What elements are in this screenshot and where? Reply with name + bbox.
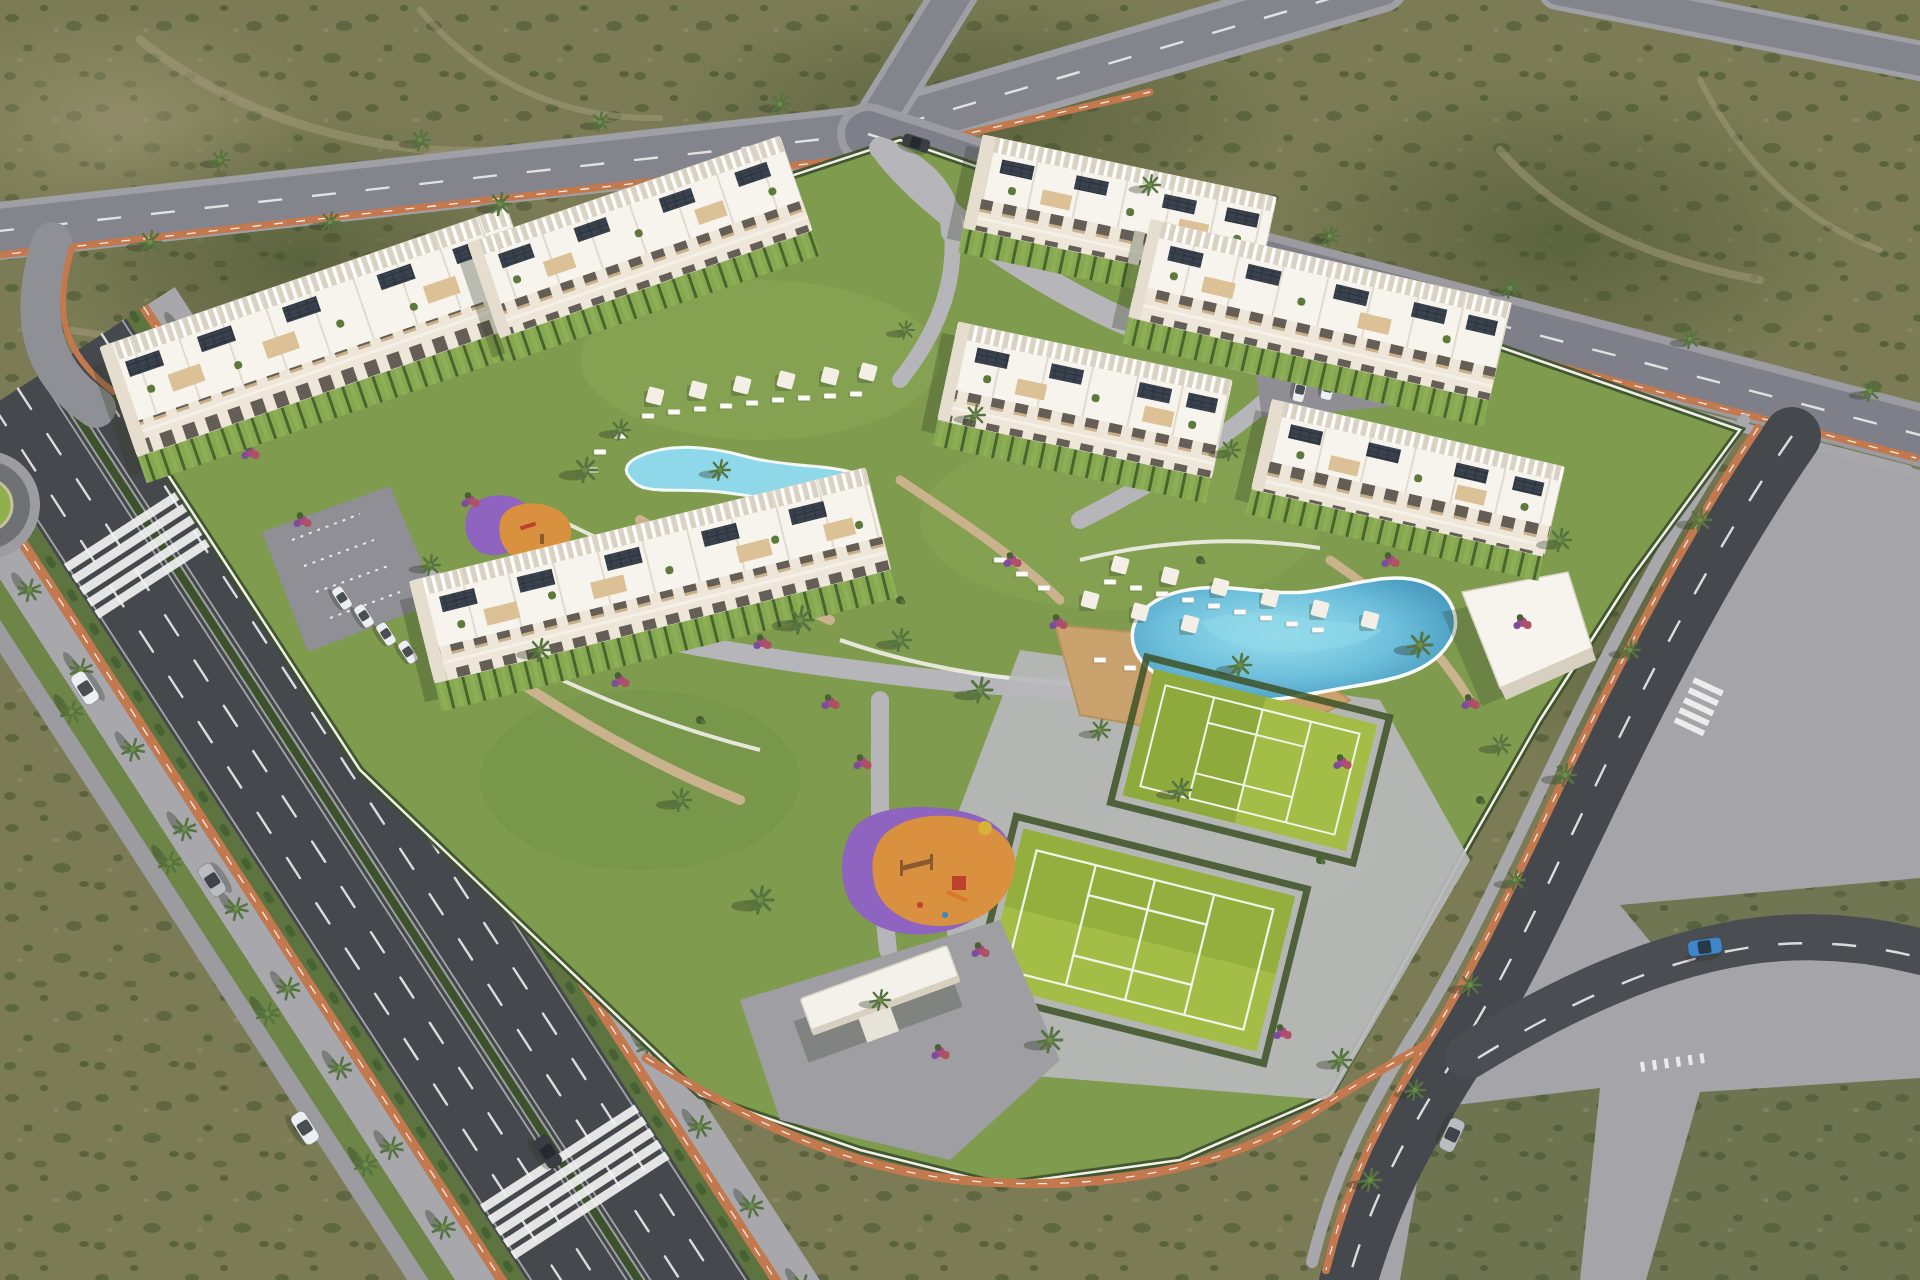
aerial-render-viewport <box>0 0 1920 1280</box>
scene-canvas <box>0 0 1920 1280</box>
yellow-parasol <box>978 821 992 835</box>
